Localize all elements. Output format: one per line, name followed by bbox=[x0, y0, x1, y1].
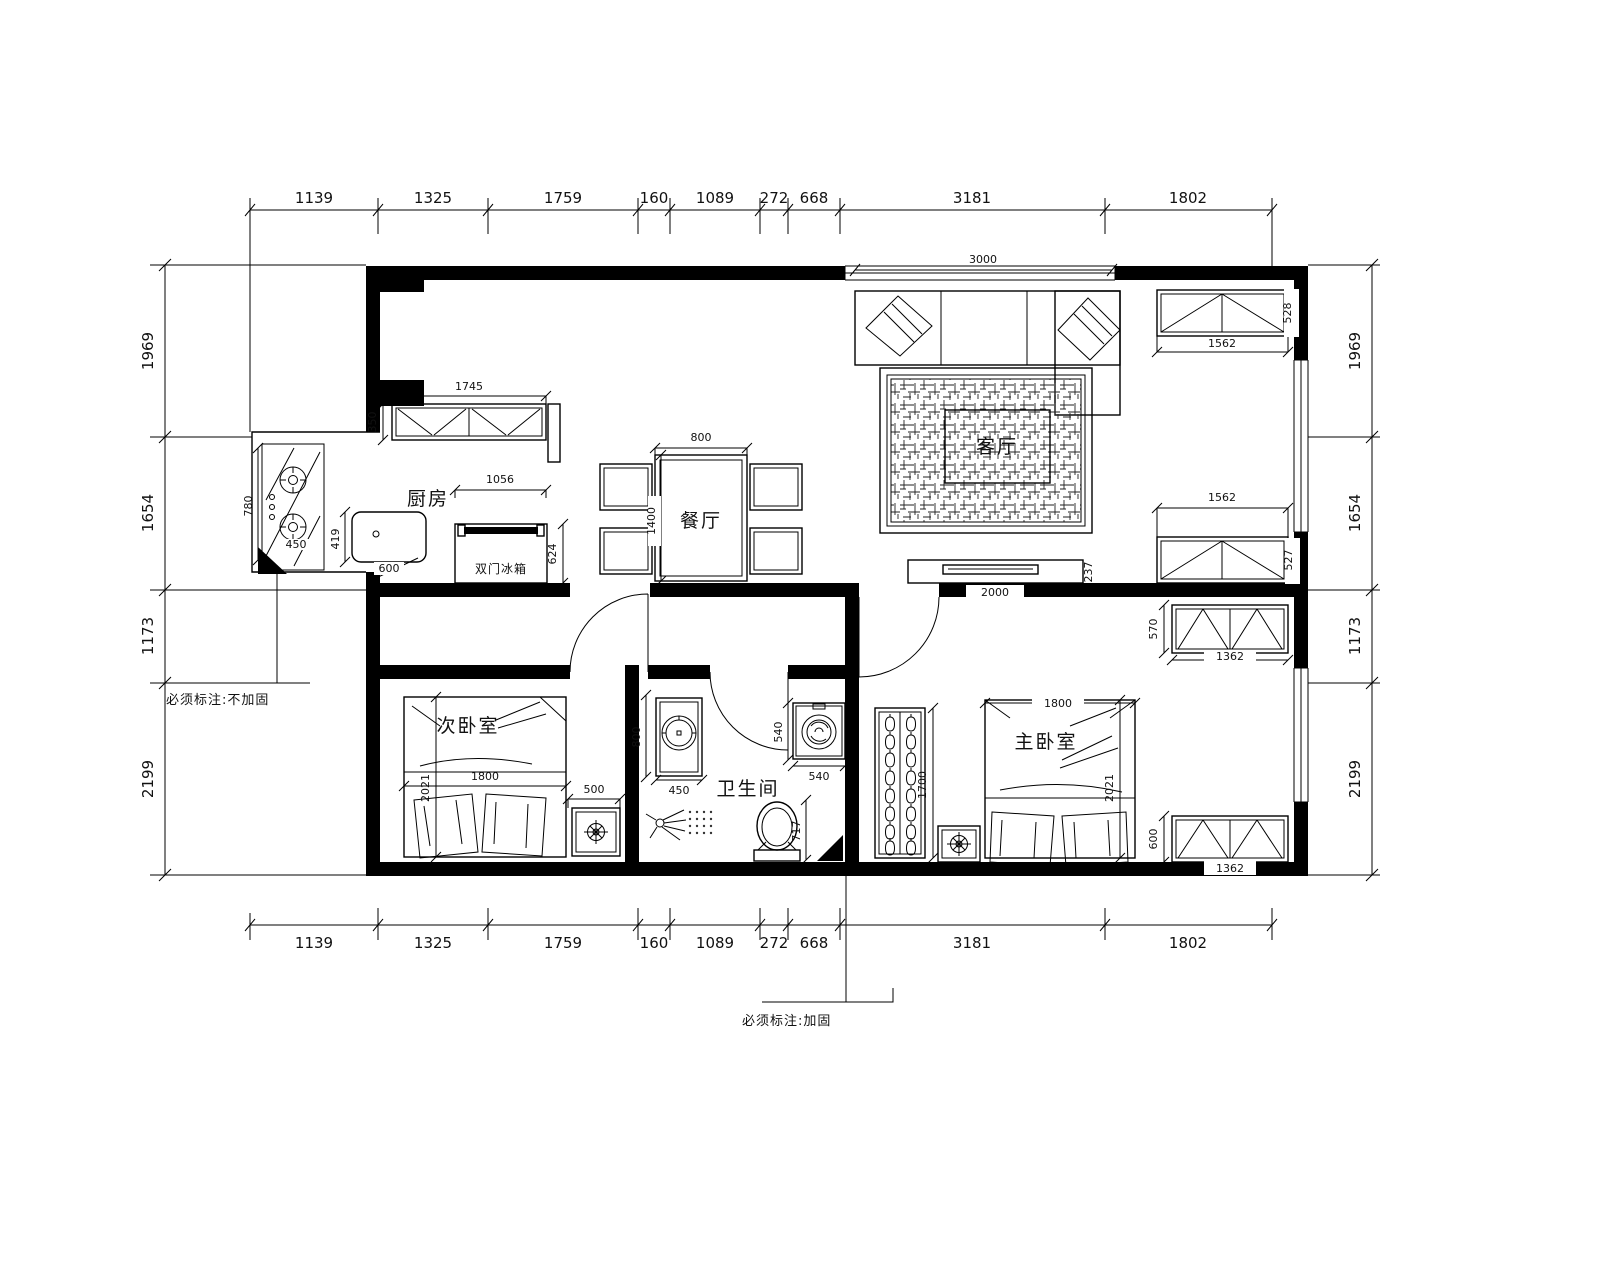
dim-bed1-width: 1800 bbox=[1044, 697, 1072, 710]
sofa-pillow-left bbox=[866, 296, 932, 356]
master-bedroom-label: 主卧室 bbox=[1014, 731, 1077, 753]
dim-sink-depth: 419 bbox=[329, 529, 342, 550]
master-bedroom: 1700 主卧室 1800 2021 bbox=[875, 695, 1140, 866]
tv-side-cabinet bbox=[1157, 537, 1288, 583]
kitchen-cabinet bbox=[392, 404, 546, 440]
floor-plan-canvas: 双门冰箱 600 450 厨房 1745 350 1056 bbox=[0, 0, 1600, 1280]
cooktop: 450 bbox=[262, 444, 324, 570]
kitchen-label: 厨房 bbox=[407, 488, 449, 510]
dim-left-2: 1173 bbox=[139, 617, 157, 655]
dim-top-0: 1139 bbox=[295, 189, 333, 207]
dim-bed1-length: 2021 bbox=[1103, 774, 1116, 802]
dim-bottom-4: 1089 bbox=[696, 934, 734, 952]
floor-plan-drawing: 双门冰箱 600 450 厨房 1745 350 1056 bbox=[0, 0, 1600, 1280]
living-label: 客厅 bbox=[976, 436, 1018, 458]
dim-top-1: 1325 bbox=[414, 189, 452, 207]
dim-washer-width: 540 bbox=[809, 770, 830, 783]
dim-tv-depth: 237 bbox=[1082, 562, 1095, 583]
dim-living-width: 3000 bbox=[969, 253, 997, 266]
bed2-pillow-left bbox=[414, 794, 478, 858]
dim-closet-length: 1700 bbox=[916, 771, 929, 799]
living-room: 客厅 3000 2000 237 bbox=[850, 253, 1120, 599]
master-wardrobe-top bbox=[1172, 605, 1288, 653]
dim-wardrobe-bottom-width: 1362 bbox=[1216, 862, 1244, 875]
dim-counter-length: 780 bbox=[242, 496, 255, 517]
dim-fridge-depth: 624 bbox=[546, 544, 559, 565]
kitchen-wall-stub bbox=[548, 404, 560, 462]
dim-kitchen-cabinet-width: 1745 bbox=[455, 380, 483, 393]
right-window-lower bbox=[1294, 668, 1308, 802]
dim-washer-depth: 540 bbox=[772, 722, 785, 743]
dim-top-2: 1759 bbox=[544, 189, 582, 207]
dim-bottom-3: 160 bbox=[640, 934, 669, 952]
dim-basin-width: 450 bbox=[669, 784, 690, 797]
dim-wardrobe-bottom-depth: 600 bbox=[1147, 829, 1160, 850]
windows bbox=[845, 266, 1308, 802]
rug: 客厅 bbox=[880, 368, 1092, 533]
dim-right-3: 2199 bbox=[1346, 760, 1364, 798]
washing-machine bbox=[793, 703, 845, 759]
dim-left-0: 1969 bbox=[139, 332, 157, 370]
second-bedroom-label: 次卧室 bbox=[436, 715, 499, 737]
dim-right-0: 1969 bbox=[1346, 332, 1364, 370]
master-wardrobe-bottom bbox=[1172, 816, 1288, 862]
dim-cooktop: 450 bbox=[286, 538, 307, 551]
dim-top-3: 160 bbox=[640, 189, 669, 207]
dim-toilet-depth: 717 bbox=[790, 821, 803, 842]
bathroom: 800 450 卫生间 717 bbox=[630, 690, 850, 865]
living-top-window bbox=[845, 266, 1115, 280]
dimension-chain-right: 1969 1654 1173 2199 bbox=[1308, 259, 1380, 881]
basin bbox=[656, 698, 702, 776]
dim-bottom-6: 668 bbox=[800, 934, 829, 952]
master-bedroom-door-arc bbox=[859, 597, 939, 677]
dim-cabinet-mid-depth: 527 bbox=[1282, 550, 1295, 571]
fridge: 双门冰箱 bbox=[455, 524, 547, 583]
dim-cabinet-mid-width: 1562 bbox=[1208, 491, 1236, 504]
dim-cabinet-top-depth: 528 bbox=[1281, 303, 1294, 324]
kitchen: 双门冰箱 600 450 厨房 1745 350 1056 bbox=[242, 380, 568, 588]
nightstand2 bbox=[572, 808, 620, 856]
kitchen-protrusion-wall bbox=[252, 432, 380, 572]
dim-bottom-2: 1759 bbox=[544, 934, 582, 952]
dim-top-8: 1802 bbox=[1169, 189, 1207, 207]
right-cabinets: 1562 528 1562 527 570 1362 600 1362 bbox=[1147, 289, 1300, 875]
dim-tv-width: 2000 bbox=[981, 586, 1009, 599]
dim-top-4: 1089 bbox=[696, 189, 734, 207]
dim-bottom-0: 1139 bbox=[295, 934, 333, 952]
dim-top-6: 668 bbox=[800, 189, 829, 207]
dim-kitchen-cabinet-depth: 350 bbox=[366, 412, 379, 433]
dim-table-width: 800 bbox=[691, 431, 712, 444]
sofa-pillow-right bbox=[1058, 298, 1120, 360]
shower-head-icon bbox=[646, 810, 712, 840]
dim-bottom-7: 3181 bbox=[953, 934, 991, 952]
dim-cabinet-top-width: 1562 bbox=[1208, 337, 1236, 350]
dim-wardrobe-top-width: 1362 bbox=[1216, 650, 1244, 663]
dim-table-length: 1400 bbox=[645, 507, 658, 535]
dim-bath-niche: 800 bbox=[630, 727, 643, 748]
fridge-label: 双门冰箱 bbox=[475, 561, 527, 576]
dim-right-1: 1654 bbox=[1346, 494, 1364, 532]
dimension-chain-bottom: 1139 1325 1759 160 1089 272 668 3181 180… bbox=[245, 908, 1277, 952]
dim-right-2: 1173 bbox=[1346, 617, 1364, 655]
dim-left-3: 2199 bbox=[139, 760, 157, 798]
dining-label: 餐厅 bbox=[680, 510, 722, 532]
dining: 餐厅 800 1400 bbox=[600, 431, 802, 586]
dim-bottom-5: 272 bbox=[760, 934, 789, 952]
annotation-left: 必须标注:不加固 bbox=[166, 693, 269, 708]
dim-bed2-width: 1800 bbox=[471, 770, 499, 783]
second-bedroom: 次卧室 1800 2021 500 bbox=[399, 692, 625, 862]
dim-sink-width: 600 bbox=[379, 562, 400, 575]
dim-bottom-1: 1325 bbox=[414, 934, 452, 952]
bathroom-label: 卫生间 bbox=[716, 778, 779, 800]
annotations: 必须标注:不加固 必须标注:加固 bbox=[166, 574, 893, 1029]
annotation-bottom: 必须标注:加固 bbox=[742, 1014, 831, 1029]
dim-left-1: 1654 bbox=[139, 494, 157, 532]
right-window-upper bbox=[1294, 360, 1308, 532]
dim-top-5: 272 bbox=[760, 189, 789, 207]
reinforce-marker-bathroom bbox=[817, 835, 843, 861]
dim-bottom-8: 1802 bbox=[1169, 934, 1207, 952]
nightstand1 bbox=[938, 826, 980, 862]
walls bbox=[252, 266, 1308, 876]
sink: 600 bbox=[352, 512, 426, 580]
dim-fridge-width: 1056 bbox=[486, 473, 514, 486]
dim-top-7: 3181 bbox=[953, 189, 991, 207]
entry-cabinet bbox=[1157, 290, 1288, 336]
second-bedroom-door-arc bbox=[570, 594, 648, 672]
dim-bed2-length: 2021 bbox=[419, 774, 432, 802]
dim-wardrobe-top-depth: 570 bbox=[1147, 619, 1160, 640]
dim-nightstand2: 500 bbox=[584, 783, 605, 796]
bed2-pillow-right bbox=[482, 794, 546, 856]
